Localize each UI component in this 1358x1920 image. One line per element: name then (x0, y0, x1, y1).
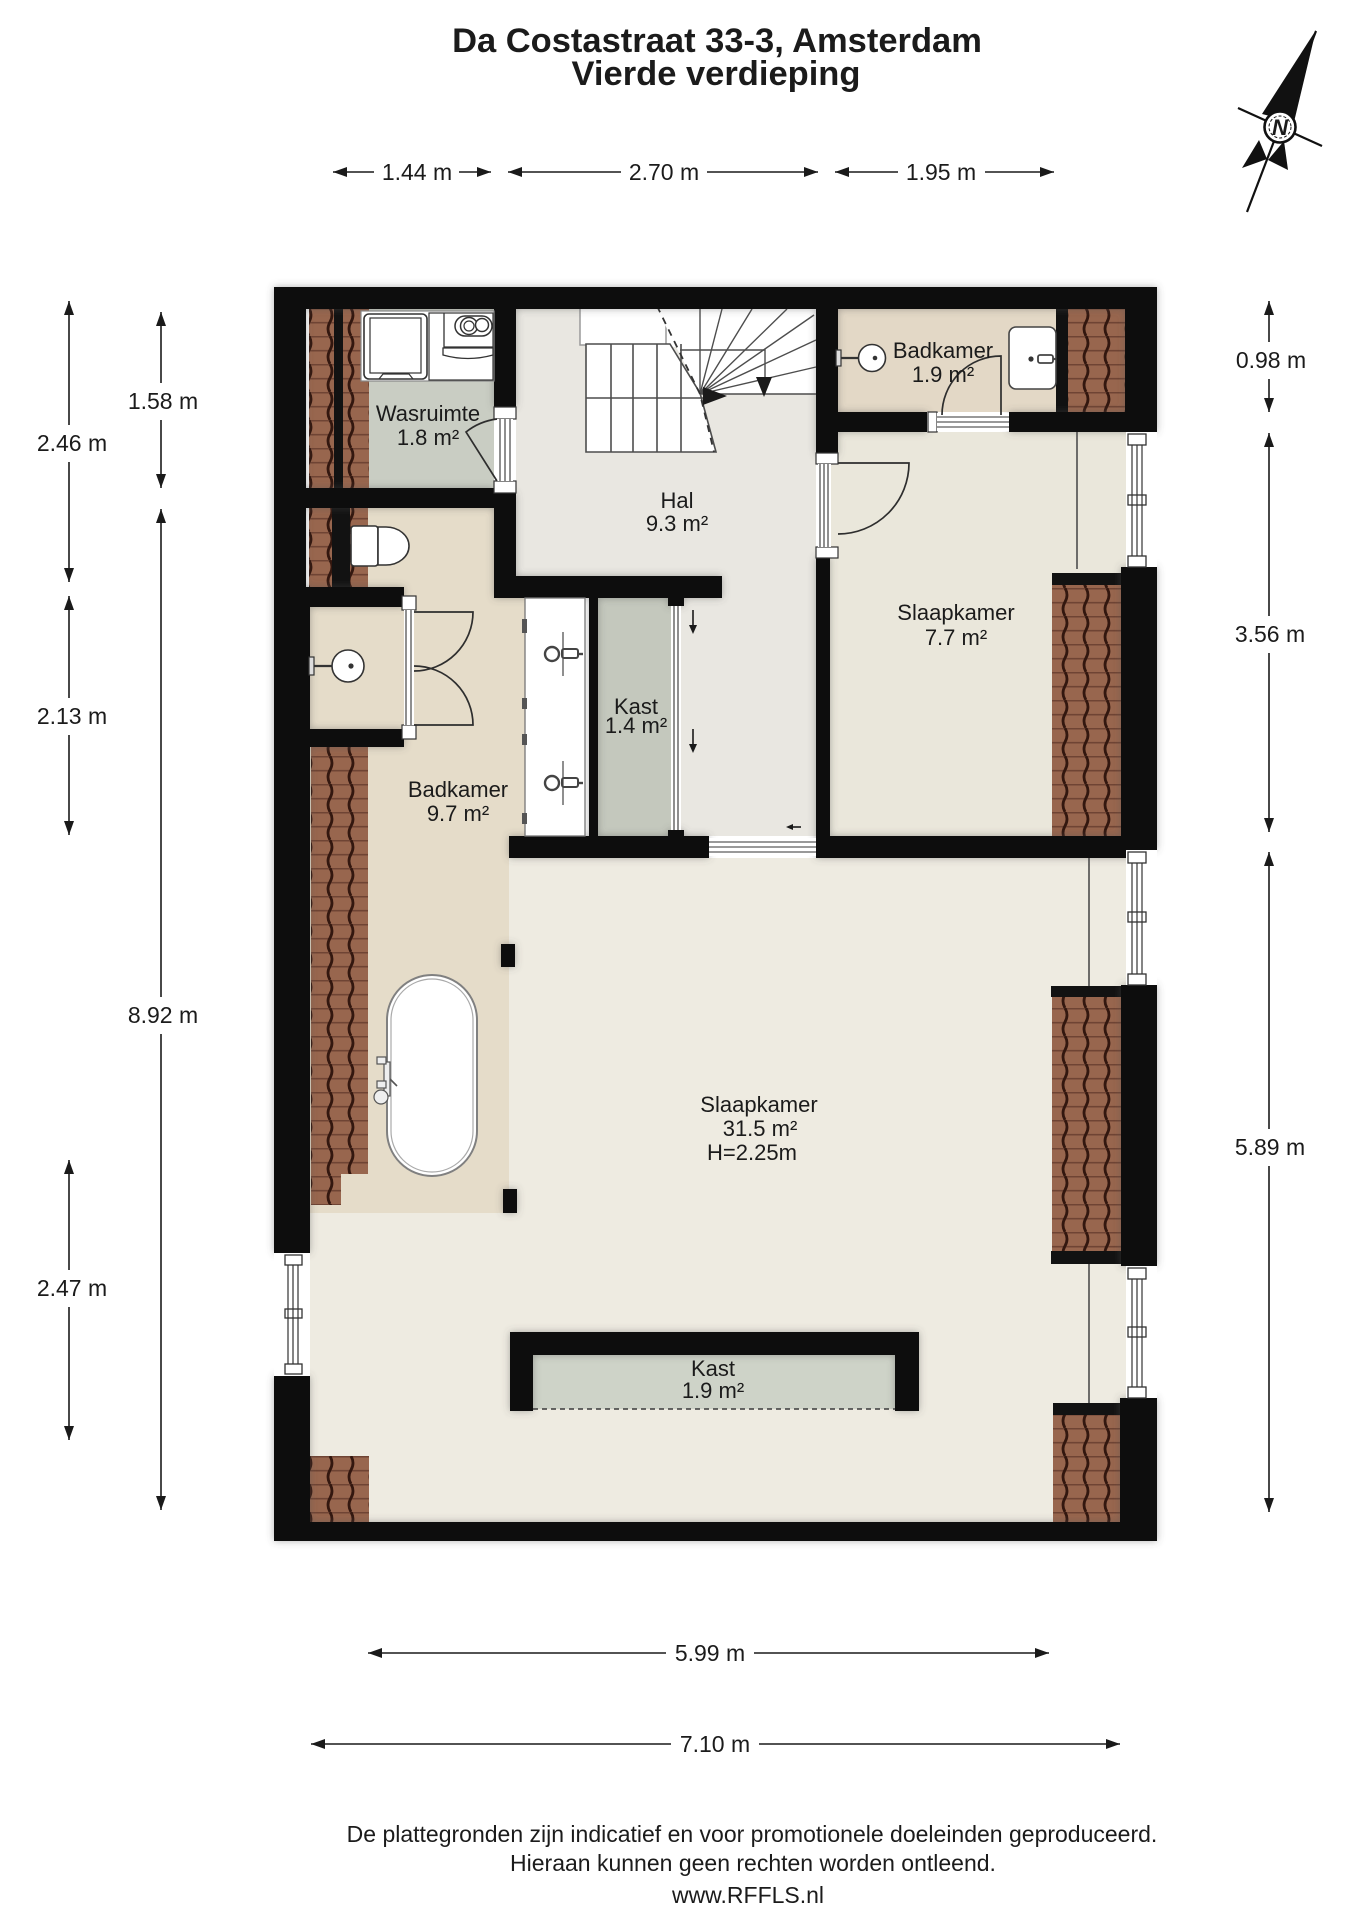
svg-text:5.99 m: 5.99 m (675, 1640, 745, 1666)
svg-text:Wasruimte: Wasruimte (376, 401, 480, 426)
svg-text:9.7 m²: 9.7 m² (427, 801, 489, 826)
svg-text:2.13 m: 2.13 m (37, 703, 107, 729)
svg-text:2.47 m: 2.47 m (37, 1275, 107, 1301)
svg-text:1.9 m²: 1.9 m² (682, 1378, 744, 1403)
svg-text:2.46 m: 2.46 m (37, 430, 107, 456)
svg-text:1.9 m²: 1.9 m² (912, 362, 974, 387)
svg-text:Vierde verdieping: Vierde verdieping (572, 55, 861, 93)
svg-text:8.92 m: 8.92 m (128, 1002, 198, 1028)
svg-text:Slaapkamer: Slaapkamer (700, 1092, 817, 1117)
svg-text:www.RFFLS.nl: www.RFFLS.nl (671, 1882, 824, 1908)
svg-text:1.4 m²: 1.4 m² (605, 713, 667, 738)
svg-text:2.70 m: 2.70 m (629, 159, 699, 185)
svg-text:31.5 m²: 31.5 m² (723, 1116, 798, 1141)
svg-text:Slaapkamer: Slaapkamer (897, 600, 1014, 625)
svg-text:H=2.25m: H=2.25m (707, 1140, 797, 1165)
svg-text:De plattegronden zijn indicati: De plattegronden zijn indicatief en voor… (347, 1821, 1158, 1847)
svg-text:1.8 m²: 1.8 m² (397, 425, 459, 450)
svg-text:Hal: Hal (660, 488, 693, 513)
svg-text:7.10 m: 7.10 m (680, 1731, 750, 1757)
svg-text:5.89 m: 5.89 m (1235, 1134, 1305, 1160)
svg-text:1.44 m: 1.44 m (382, 159, 452, 185)
svg-text:0.98 m: 0.98 m (1236, 347, 1306, 373)
svg-text:N: N (1272, 115, 1289, 140)
svg-text:7.7 m²: 7.7 m² (925, 625, 987, 650)
svg-text:Badkamer: Badkamer (408, 777, 508, 802)
svg-text:Badkamer: Badkamer (893, 338, 993, 363)
svg-text:Hieraan kunnen geen rechten wo: Hieraan kunnen geen rechten worden ontle… (510, 1850, 996, 1876)
svg-text:9.3 m²: 9.3 m² (646, 511, 708, 536)
svg-text:1.58 m: 1.58 m (128, 388, 198, 414)
svg-text:3.56 m: 3.56 m (1235, 621, 1305, 647)
svg-text:1.95 m: 1.95 m (906, 159, 976, 185)
